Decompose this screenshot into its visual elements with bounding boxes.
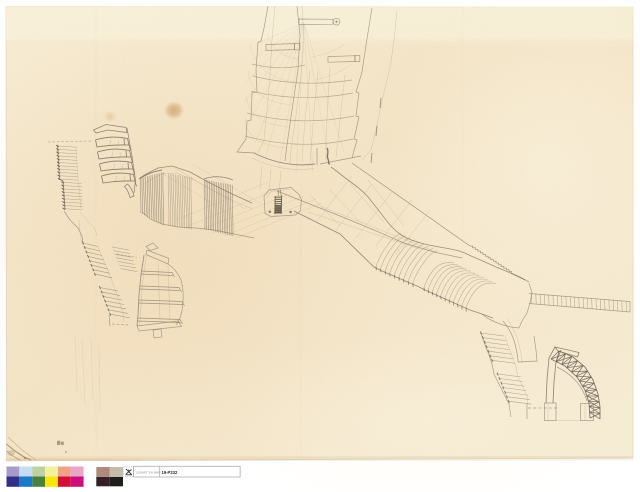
- svg-text:CODART XXl MMG: CODART XXl MMG: [136, 470, 160, 474]
- svg-text:19-P232: 19-P232: [162, 470, 179, 475]
